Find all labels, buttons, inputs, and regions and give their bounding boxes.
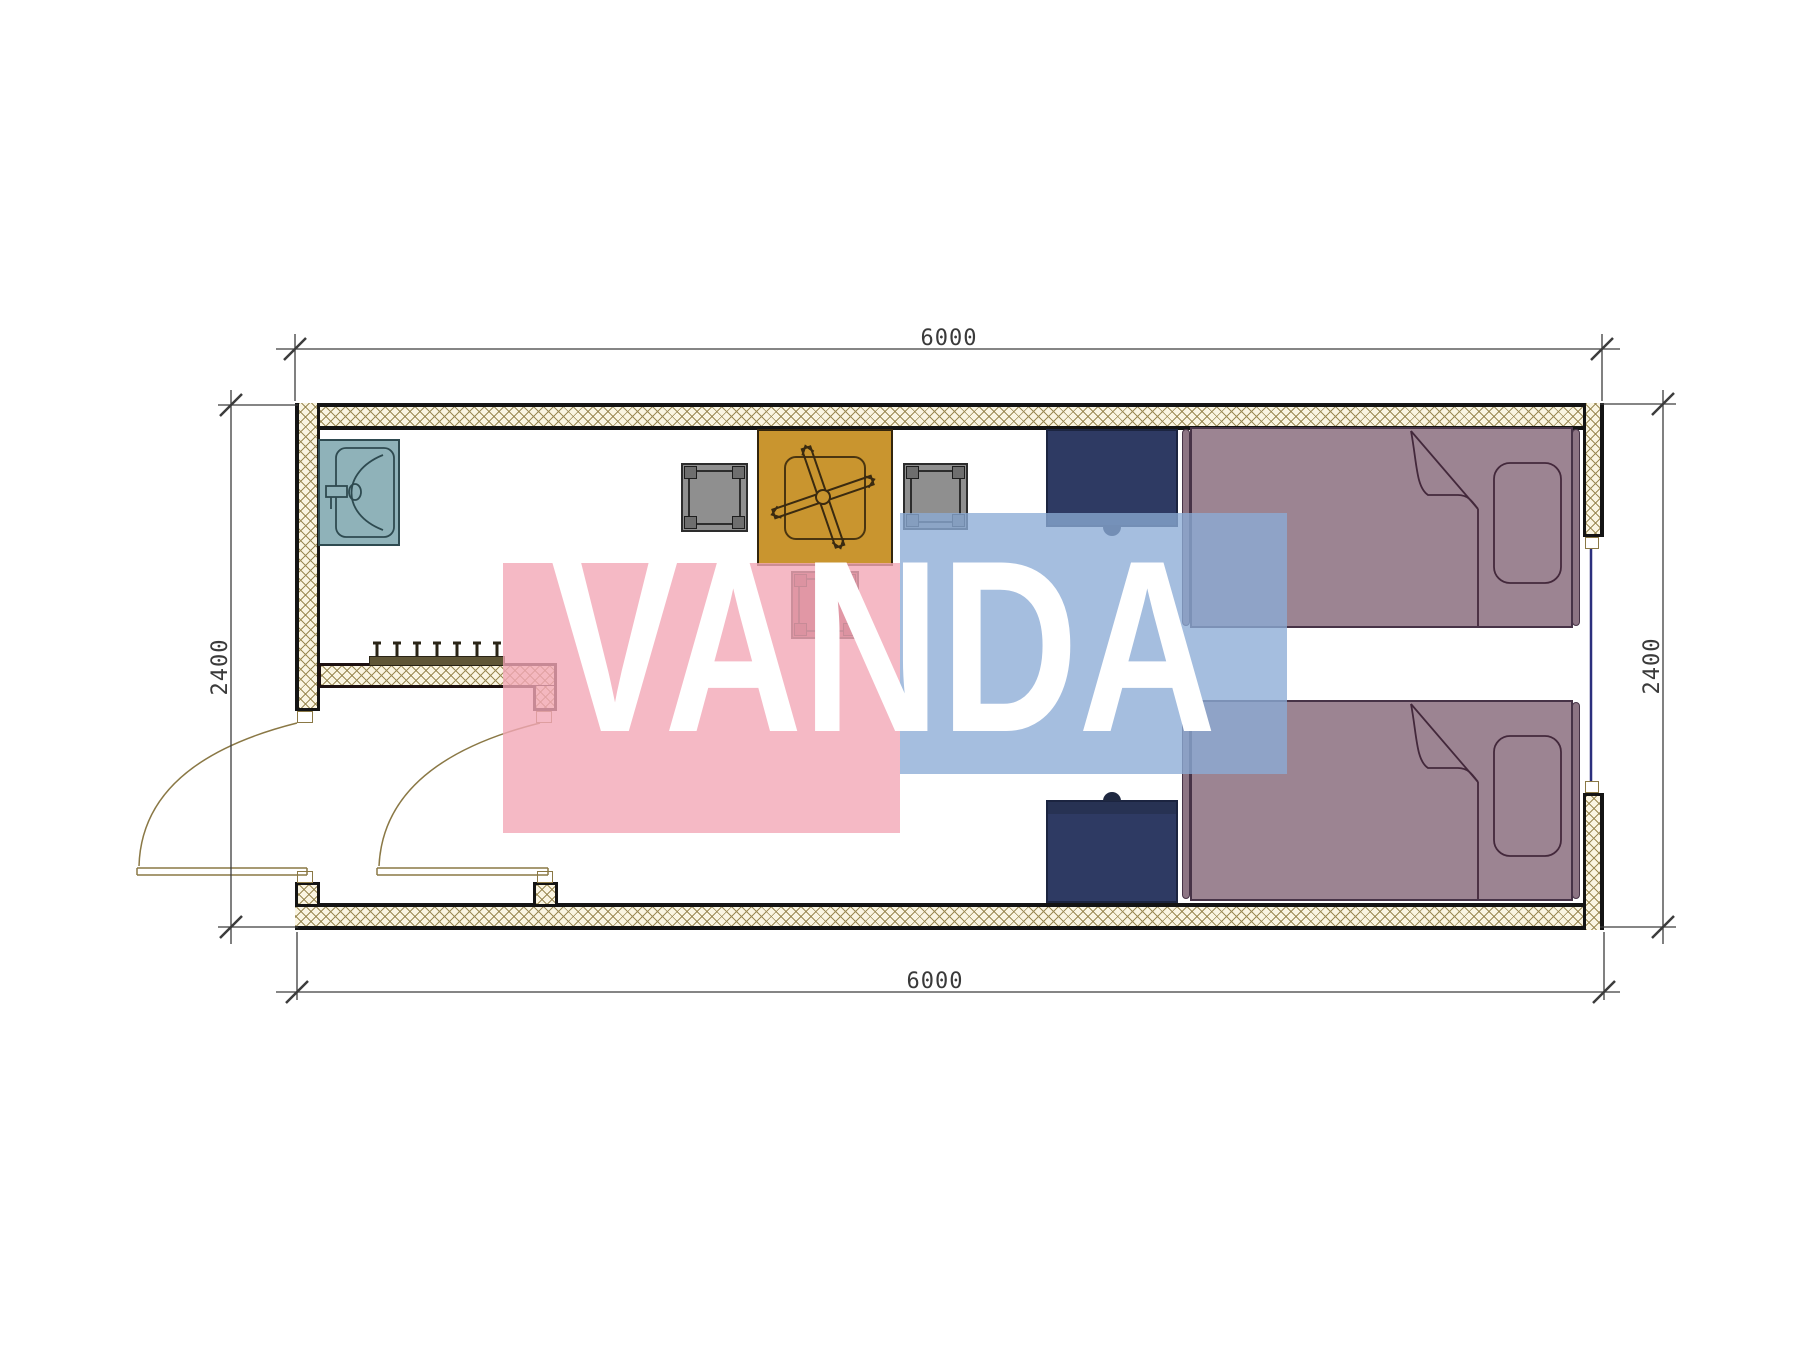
watermark-text: VANDA bbox=[551, 524, 1216, 769]
coat-hooks-icon bbox=[373, 643, 501, 656]
door-left bbox=[137, 723, 307, 875]
dim-label-right: 2400 bbox=[1640, 638, 1665, 695]
bed-bottom-details bbox=[1411, 704, 1561, 899]
nightstand-bottom-knob-icon bbox=[1103, 792, 1121, 801]
sink-basin-icon bbox=[326, 448, 394, 537]
dim-label-left: 2400 bbox=[208, 639, 233, 696]
dim-label-top: 6000 bbox=[921, 326, 978, 351]
floor-plan-canvas: 6000 6000 2400 2400 VANDA bbox=[0, 0, 1800, 1350]
dim-label-bottom: 6000 bbox=[907, 969, 964, 994]
bed-top-details bbox=[1411, 431, 1561, 626]
